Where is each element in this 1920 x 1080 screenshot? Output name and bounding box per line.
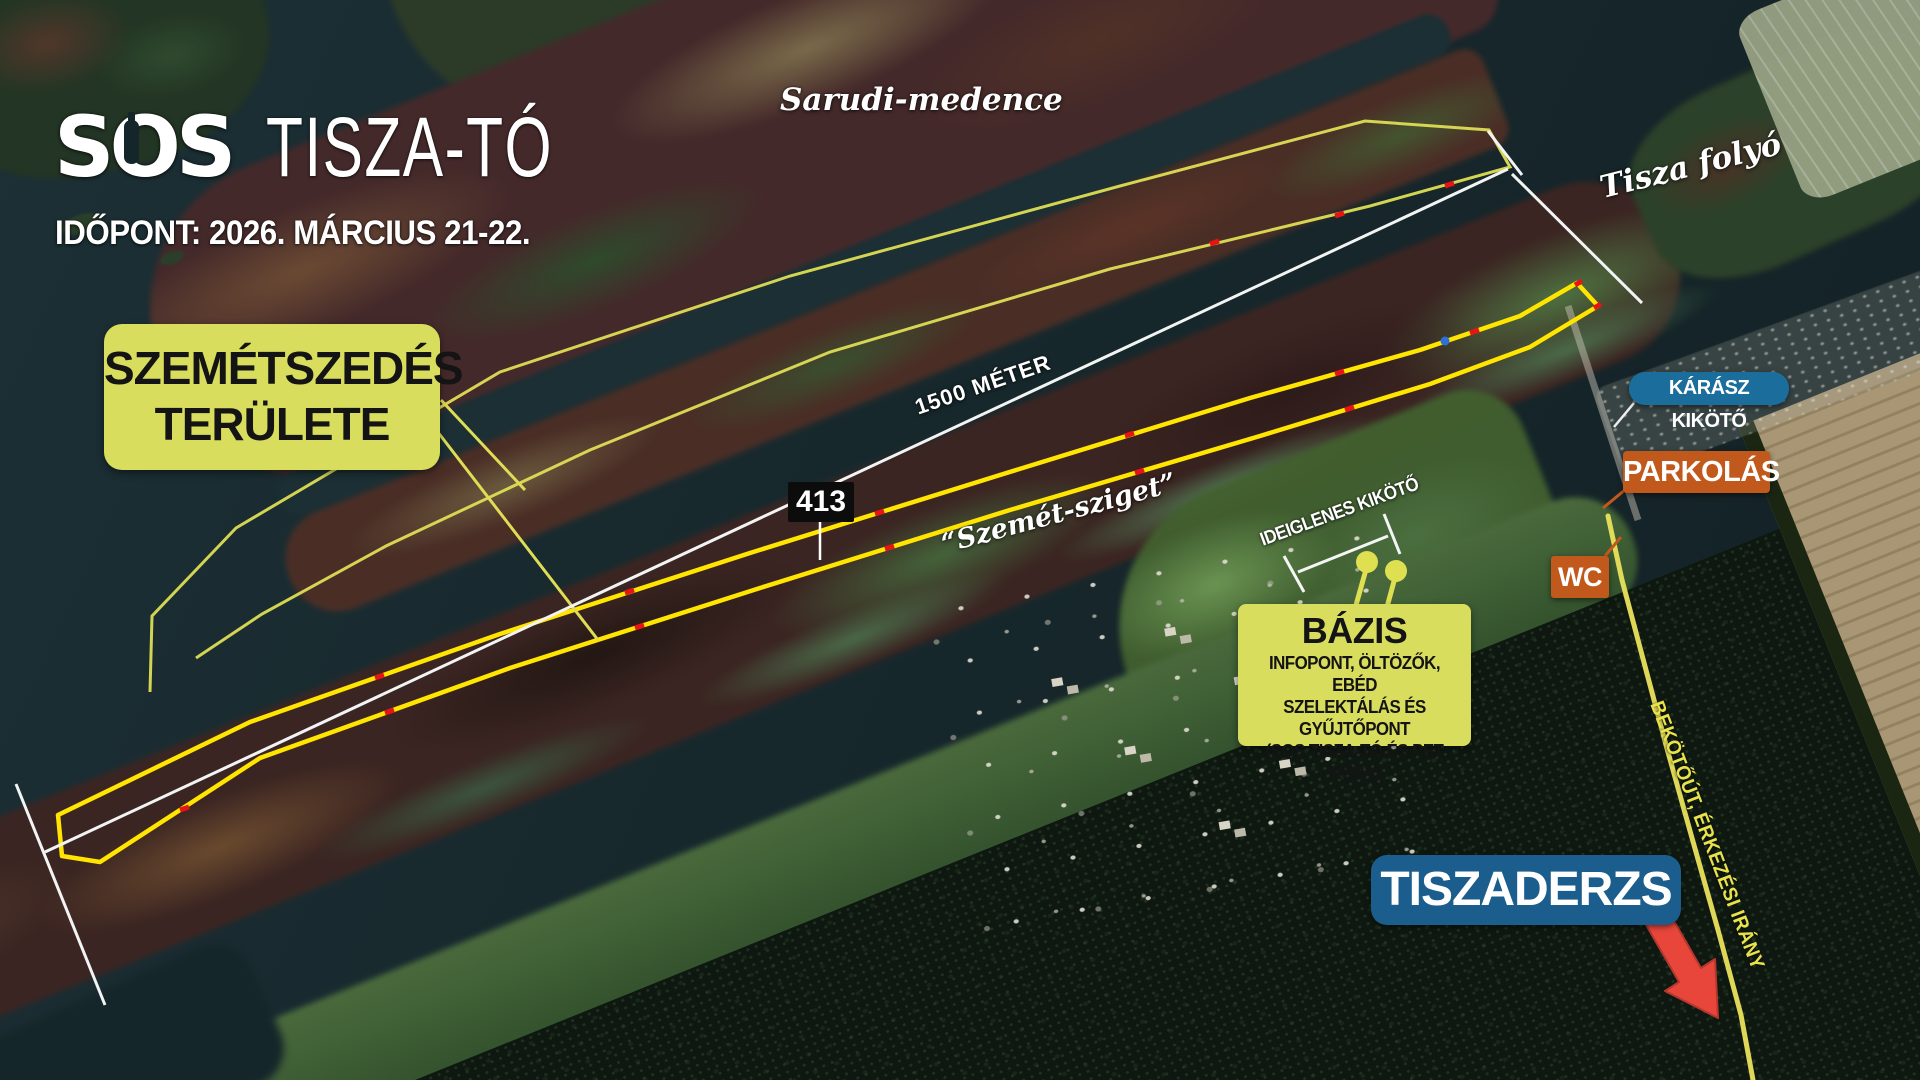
base-title: BÁZIS — [1238, 610, 1471, 652]
base-line3: (SOS TISZA-TÓ ÉS PET KUPA) — [1245, 740, 1464, 784]
base-line2: SZELEKTÁLÁS ÉS GYŰJTŐPONT — [1245, 696, 1464, 740]
collection-area-line2: TERÜLETE — [104, 396, 440, 452]
base-line1: INFOPONT, ÖLTÖZŐK, EBÉD — [1245, 652, 1464, 696]
base-callout: BÁZIS INFOPONT, ÖLTÖZŐK, EBÉD SZELEKTÁLÁ… — [1238, 604, 1471, 746]
collection-area-callout: SZEMÉTSZEDÉS TERÜLETE — [104, 324, 440, 470]
collection-area-line1: SZEMÉTSZEDÉS — [104, 340, 440, 396]
wc-badge: WC — [1551, 556, 1609, 598]
route-blue-marker — [1441, 337, 1450, 346]
town-badge: TISZADERZS — [1371, 855, 1681, 925]
bottle-icon — [124, 120, 139, 164]
areabox-connector-line — [441, 400, 525, 490]
measure-line-left-tick — [16, 784, 105, 1005]
basin-label: Sarudi-medence — [780, 82, 1063, 118]
parking-badge: PARKOLÁS — [1623, 451, 1770, 493]
dock-pin-icon — [1356, 551, 1378, 573]
areabox-connector-line — [437, 431, 598, 640]
logo-sos-text: SOS — [54, 98, 256, 196]
karasz-dock-badge: KÁRÁSZ KIKÖTŐ — [1629, 372, 1789, 405]
road-number-badge: 413 — [788, 482, 854, 522]
parking-pointer-line — [1603, 489, 1626, 508]
event-date: IDŐPONT: 2026. MÁRCIUS 21-22. — [55, 214, 530, 253]
logo-name-text: TISZA-TÓ — [266, 99, 553, 196]
satellite-map: SOS TISZA-TÓ IDŐPONT: 2026. MÁRCIUS 21-2… — [0, 0, 1920, 1080]
event-logo: SOS TISZA-TÓ — [54, 98, 664, 196]
karasz-pointer-line — [1614, 403, 1634, 427]
dock-pin-icon — [1385, 560, 1407, 582]
